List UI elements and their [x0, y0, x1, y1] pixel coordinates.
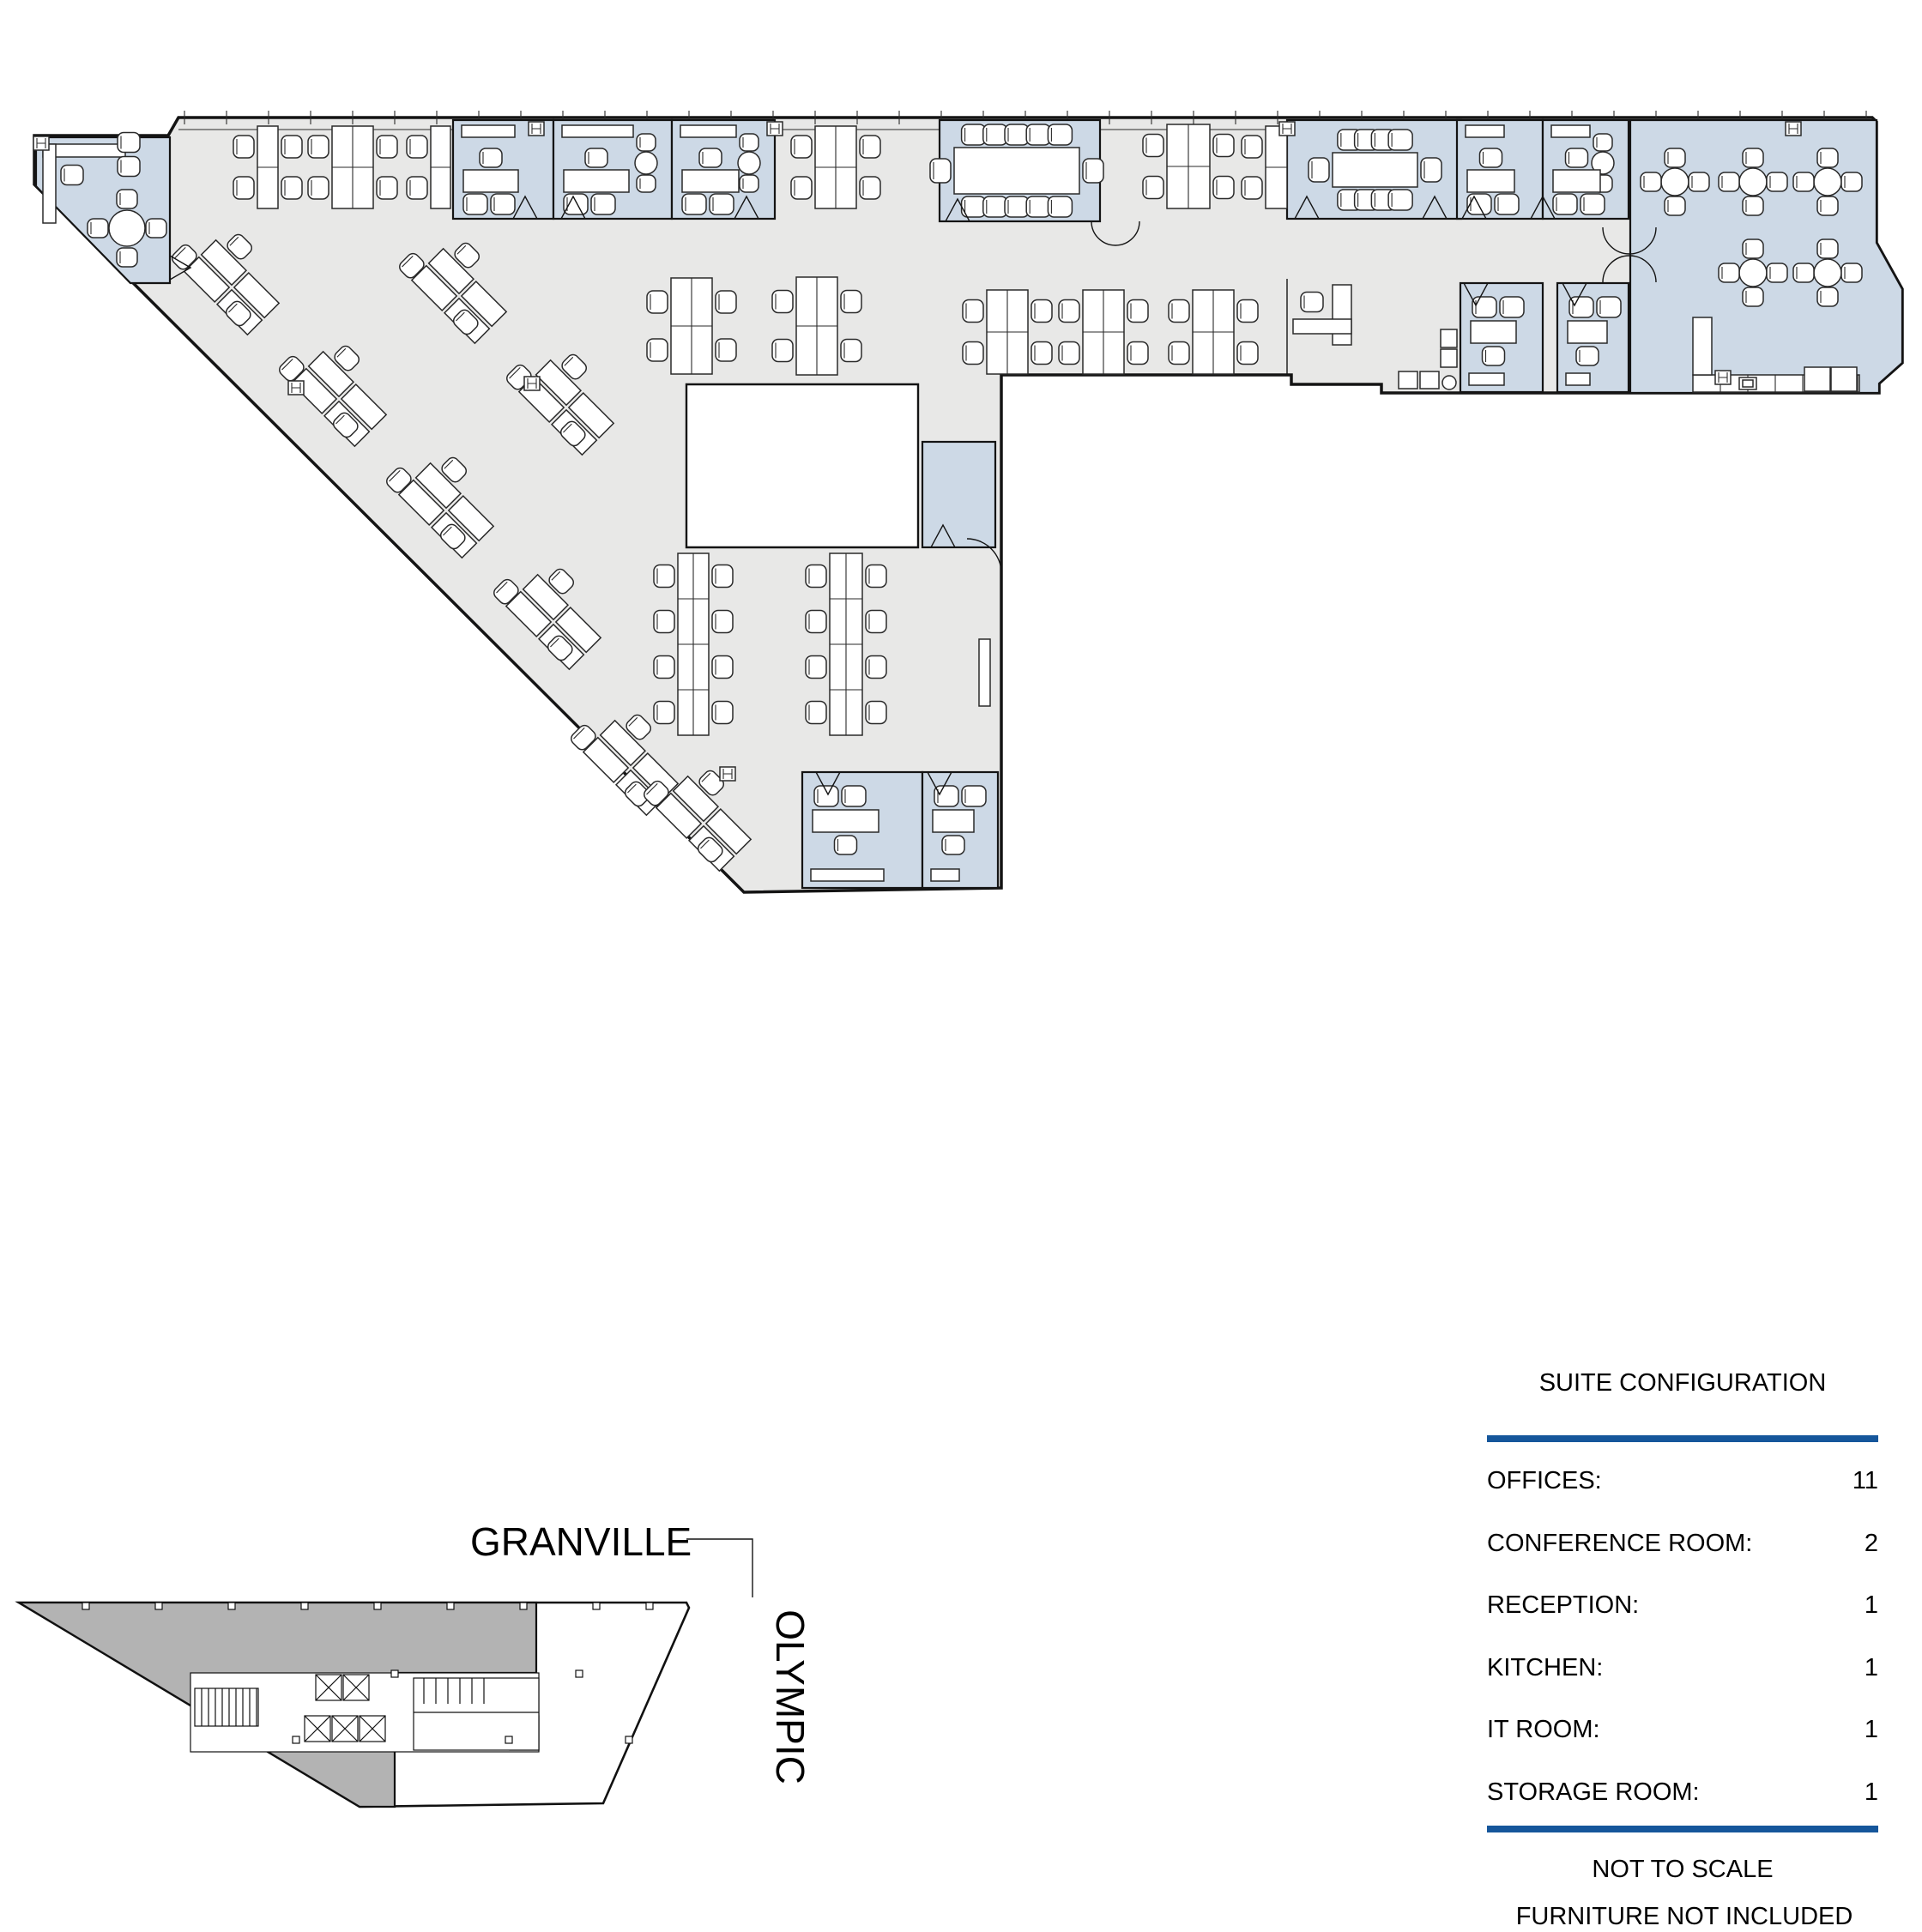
granville-label: GRANVILLE — [470, 1519, 692, 1564]
suite-configuration-panel: SUITE CONFIGURATION OFFICES: 11 CONFEREN… — [1487, 1369, 1878, 1932]
panel-rule-bottom — [1487, 1826, 1878, 1832]
config-value: 1 — [1865, 1591, 1878, 1620]
olympic-label: OLYMPIC — [768, 1609, 813, 1784]
note-furniture: FURNITURE NOT INCLUDED — [1478, 1903, 1890, 1931]
config-row: STORAGE ROOM: 1 — [1487, 1778, 1878, 1807]
config-row: RECEPTION: 1 — [1487, 1591, 1878, 1620]
config-label: IT ROOM: — [1487, 1716, 1600, 1744]
config-label: KITCHEN: — [1487, 1654, 1603, 1682]
note-not-to-scale: NOT TO SCALE — [1487, 1856, 1878, 1884]
config-value: 11 — [1852, 1467, 1878, 1495]
config-value: 1 — [1865, 1654, 1878, 1682]
config-value: 1 — [1865, 1778, 1878, 1807]
granville-leader-line — [686, 1539, 752, 1597]
panel-title: SUITE CONFIGURATION — [1487, 1369, 1878, 1398]
page: GRANVILLEOLYMPIC SUITE CONFIGURATION OFF… — [0, 0, 1922, 1932]
config-label: CONFERENCE ROOM: — [1487, 1530, 1752, 1558]
config-label: STORAGE ROOM: — [1487, 1778, 1700, 1807]
config-value: 2 — [1865, 1530, 1878, 1558]
config-label: RECEPTION: — [1487, 1591, 1639, 1620]
core-notch — [686, 384, 918, 547]
config-label: OFFICES: — [1487, 1467, 1602, 1495]
it-room — [922, 442, 995, 547]
config-value: 1 — [1865, 1716, 1878, 1744]
panel-rule-top — [1487, 1435, 1878, 1442]
config-row: KITCHEN: 1 — [1487, 1654, 1878, 1682]
config-row: CONFERENCE ROOM: 2 — [1487, 1530, 1878, 1558]
config-row: OFFICES: 11 — [1487, 1467, 1878, 1495]
config-row: IT ROOM: 1 — [1487, 1716, 1878, 1744]
